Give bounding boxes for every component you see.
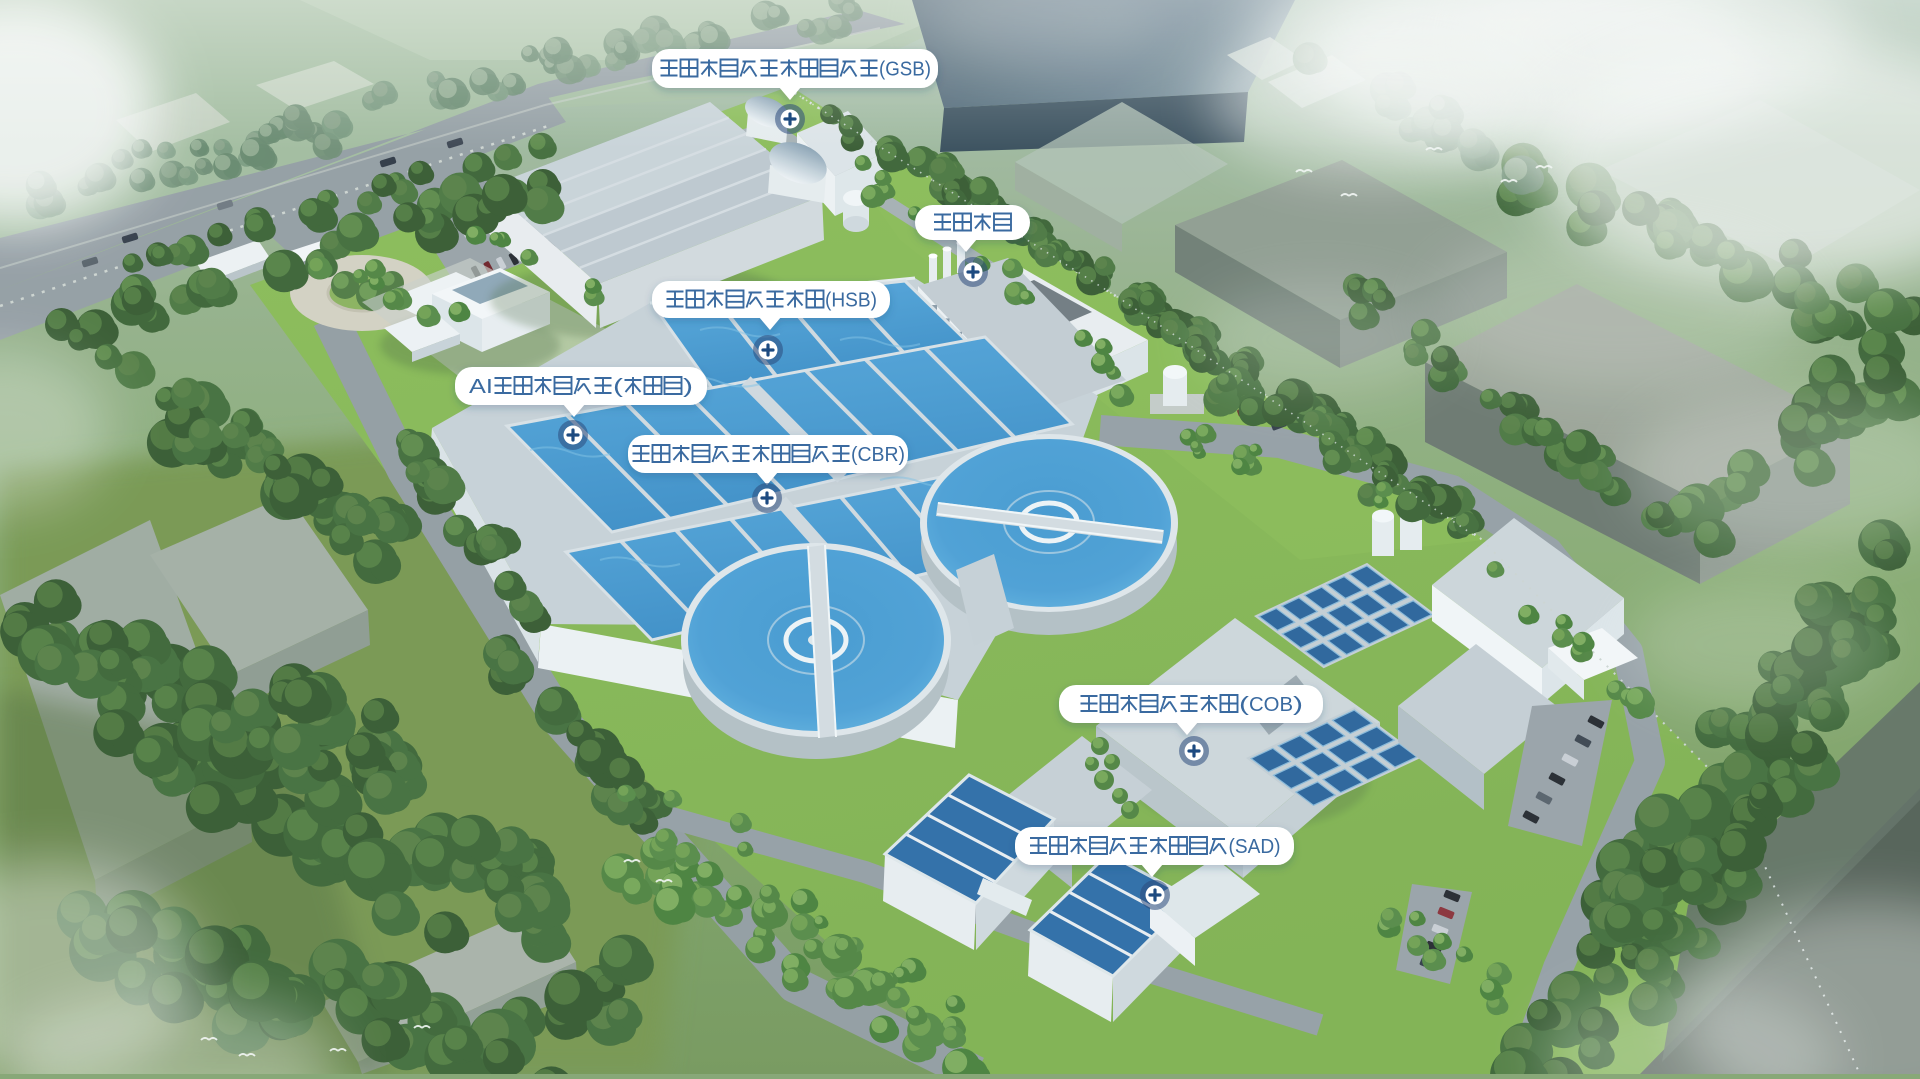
svg-text:): ) — [1293, 694, 1303, 716]
svg-text:(GSB): (GSB) — [879, 59, 931, 81]
svg-text:(SAD): (SAD) — [1229, 836, 1281, 858]
svg-text:AI: AI — [469, 376, 493, 398]
svg-text:COB: COB — [1249, 694, 1293, 716]
svg-text:(: ( — [1239, 694, 1249, 716]
svg-text:(CBR): (CBR) — [851, 444, 905, 466]
svg-text:(HSB): (HSB) — [825, 290, 877, 312]
svg-text:): ) — [683, 376, 693, 398]
svg-text:(: ( — [613, 376, 623, 398]
